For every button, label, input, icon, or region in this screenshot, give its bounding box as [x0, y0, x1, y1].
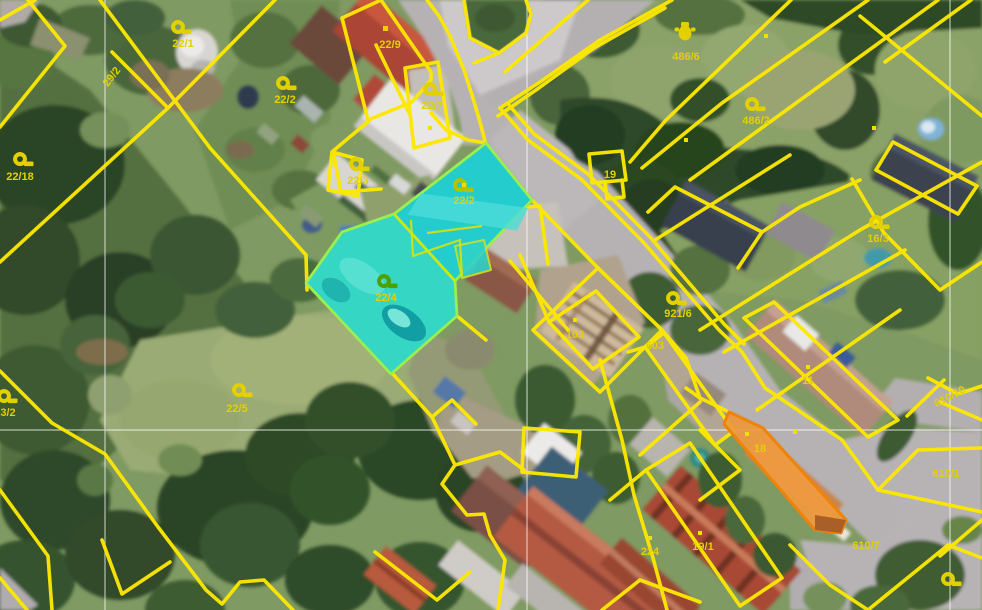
svg-text:22/7: 22/7: [421, 100, 442, 112]
svg-text:486/2: 486/2: [742, 115, 770, 127]
svg-text:22/2: 22/2: [274, 94, 295, 106]
svg-text:18: 18: [754, 443, 766, 455]
svg-text:603: 603: [646, 340, 664, 352]
svg-text:103: 103: [566, 329, 584, 341]
svg-text:22/5: 22/5: [226, 403, 247, 415]
svg-text:22/18: 22/18: [6, 171, 34, 183]
svg-text:3/2: 3/2: [0, 407, 15, 419]
svg-text:22/1: 22/1: [172, 38, 193, 50]
svg-text:22/3: 22/3: [347, 175, 368, 187]
svg-text:19: 19: [604, 169, 616, 181]
svg-text:610/7: 610/7: [852, 540, 880, 552]
svg-text:22/4: 22/4: [375, 292, 397, 304]
svg-text:22/2: 22/2: [453, 195, 474, 207]
svg-text:11: 11: [802, 375, 814, 387]
svg-text:224: 224: [641, 546, 660, 558]
svg-text:921/6: 921/6: [664, 308, 692, 320]
svg-text:19/1: 19/1: [692, 541, 713, 553]
svg-text:486/6: 486/6: [672, 51, 700, 63]
svg-text:16/3: 16/3: [867, 233, 888, 245]
svg-text:22/9: 22/9: [379, 39, 400, 51]
svg-text:610/1: 610/1: [932, 468, 960, 480]
